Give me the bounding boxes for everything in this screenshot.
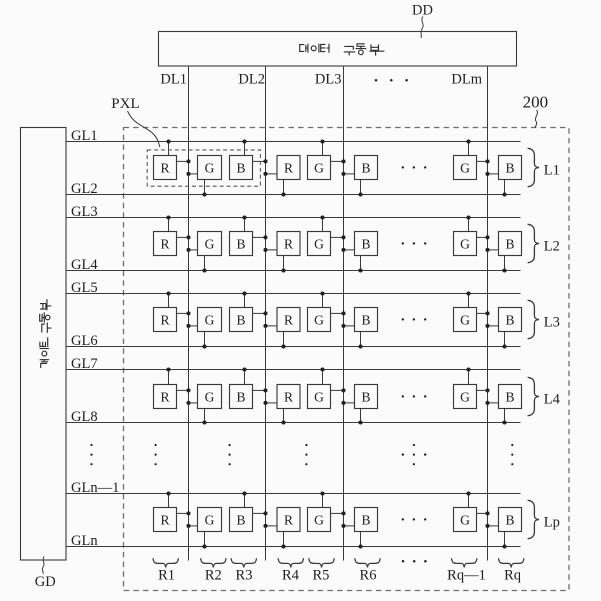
svg-text:GLn—1: GLn—1 [71, 480, 119, 496]
svg-text:R3: R3 [236, 567, 253, 583]
svg-text:G: G [314, 389, 324, 404]
svg-text:B: B [236, 512, 245, 527]
svg-text:R: R [284, 389, 293, 404]
svg-text:DLm: DLm [451, 72, 482, 88]
svg-text:200: 200 [523, 92, 549, 111]
svg-text:B: B [505, 312, 514, 327]
svg-text:R: R [284, 160, 293, 175]
svg-text:B: B [505, 512, 514, 527]
svg-text:R: R [284, 236, 293, 251]
svg-text:GL2: GL2 [71, 181, 98, 197]
svg-text:GL8: GL8 [71, 409, 98, 425]
svg-text:G: G [460, 512, 470, 527]
svg-text:L3: L3 [544, 315, 560, 331]
svg-text:B: B [505, 236, 514, 251]
svg-text:G: G [460, 160, 470, 175]
svg-text:B: B [236, 236, 245, 251]
svg-text:G: G [314, 312, 324, 327]
svg-text:G: G [205, 512, 215, 527]
svg-text:G: G [314, 236, 324, 251]
svg-text:R: R [160, 512, 169, 527]
svg-text:G: G [460, 236, 470, 251]
svg-text:R6: R6 [360, 567, 377, 583]
svg-text:DD: DD [412, 3, 433, 19]
svg-text:GLn: GLn [71, 533, 98, 549]
svg-text:B: B [236, 160, 245, 175]
svg-text:R: R [160, 236, 169, 251]
svg-text:PXL: PXL [111, 96, 139, 112]
svg-text:R2: R2 [205, 567, 222, 583]
svg-text:G: G [205, 389, 215, 404]
svg-text:L2: L2 [544, 239, 560, 255]
svg-text:B: B [505, 160, 514, 175]
svg-text:R: R [284, 512, 293, 527]
svg-text:DL3: DL3 [315, 72, 342, 88]
svg-text:Rq—1: Rq—1 [447, 567, 486, 583]
svg-text:R: R [160, 160, 169, 175]
svg-text:B: B [361, 160, 370, 175]
svg-text:G: G [460, 389, 470, 404]
svg-text:B: B [361, 389, 370, 404]
svg-text:Lp: Lp [544, 515, 560, 531]
svg-text:GL3: GL3 [71, 204, 98, 220]
svg-text:GL7: GL7 [71, 356, 98, 372]
svg-text:G: G [314, 160, 324, 175]
svg-text:GD: GD [35, 574, 56, 590]
svg-text:B: B [361, 512, 370, 527]
svg-text:GL6: GL6 [71, 333, 98, 349]
svg-text:G: G [205, 160, 215, 175]
svg-text:G: G [205, 236, 215, 251]
svg-text:G: G [460, 312, 470, 327]
svg-text:B: B [236, 312, 245, 327]
svg-text:R: R [284, 312, 293, 327]
svg-text:G: G [205, 312, 215, 327]
svg-text:GL4: GL4 [71, 257, 98, 273]
svg-text:R5: R5 [312, 567, 329, 583]
svg-text:GL1: GL1 [71, 128, 98, 144]
svg-text:L1: L1 [544, 163, 560, 179]
svg-text:L4: L4 [544, 392, 561, 408]
svg-text:Rq: Rq [504, 567, 521, 583]
svg-text:R1: R1 [158, 567, 175, 583]
svg-text:R4: R4 [282, 567, 300, 583]
svg-text:R: R [160, 389, 169, 404]
svg-text:B: B [361, 236, 370, 251]
svg-text:G: G [314, 512, 324, 527]
svg-text:GL5: GL5 [71, 280, 98, 296]
svg-text:DL1: DL1 [160, 72, 187, 88]
svg-text:B: B [361, 312, 370, 327]
svg-text:B: B [236, 389, 245, 404]
svg-text:B: B [505, 389, 514, 404]
svg-text:R: R [160, 312, 169, 327]
svg-text:DL2: DL2 [238, 72, 265, 88]
